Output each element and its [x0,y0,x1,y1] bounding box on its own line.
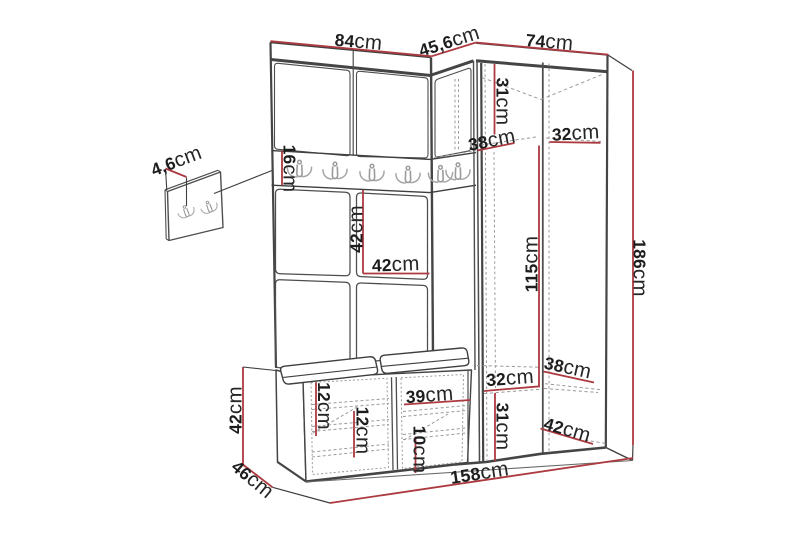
svg-text:12cm: 12cm [313,382,336,430]
svg-text:10cm: 10cm [409,426,432,474]
svg-text:186cm: 186cm [629,239,652,297]
svg-text:32cm: 32cm [551,120,600,145]
svg-text:12cm: 12cm [352,407,375,455]
svg-text:115cm: 115cm [520,236,543,293]
svg-text:31cm: 31cm [492,403,515,451]
svg-text:42cm: 42cm [345,205,368,253]
svg-text:42cm: 42cm [372,252,420,277]
svg-text:31cm: 31cm [492,78,515,126]
svg-text:16cm: 16cm [279,145,302,193]
svg-text:32cm: 32cm [485,365,534,391]
svg-text:39cm: 39cm [405,382,454,408]
svg-text:42cm: 42cm [224,386,247,434]
